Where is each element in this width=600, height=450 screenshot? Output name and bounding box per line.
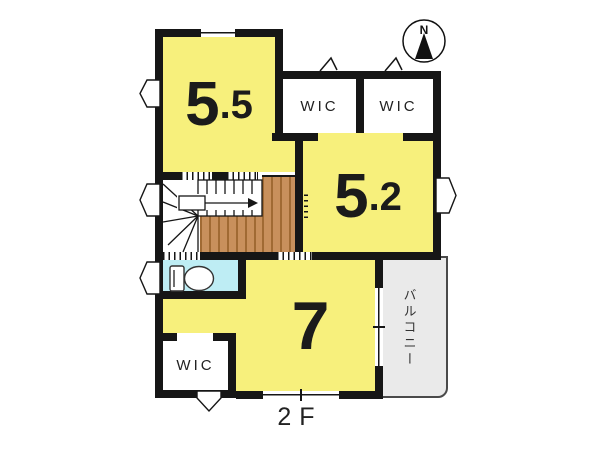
bedroom-b-area-frac: .2 bbox=[369, 177, 402, 217]
window-bedroom-a-left-icon bbox=[140, 80, 160, 107]
awning-window-wic1-icon bbox=[320, 58, 337, 71]
window-bedroom-b-right-icon bbox=[436, 178, 456, 213]
window-stairs-left-icon bbox=[140, 184, 160, 216]
bedroom-a-area-whole: 5 bbox=[185, 74, 219, 136]
awning-window-icons bbox=[320, 58, 402, 71]
wic-bottom-label: WIC bbox=[163, 341, 228, 390]
window-wic-bottom-icon bbox=[197, 391, 221, 411]
floor-label: 2F bbox=[255, 402, 345, 432]
window-toilet-left-icon bbox=[140, 262, 160, 294]
wic-top-right-label: WIC bbox=[364, 79, 433, 133]
balcony-label: バルコニー bbox=[400, 288, 418, 368]
awning-window-wic2-icon bbox=[385, 58, 402, 71]
bedroom-a-area-frac: .5 bbox=[220, 85, 253, 125]
bedroom-b-area-whole: 5 bbox=[334, 166, 368, 228]
staircase bbox=[163, 180, 262, 252]
toilet-icon bbox=[170, 266, 214, 291]
floor-plan: N 5.5 5.2 7 WIC WIC WIC バルコニー 2F bbox=[0, 0, 600, 450]
bedroom-c-label: 7 bbox=[246, 258, 375, 393]
bedroom-c-area-whole: 7 bbox=[292, 292, 330, 360]
wic-top-left-label: WIC bbox=[283, 79, 356, 133]
bedroom-a-label: 5.5 bbox=[163, 37, 275, 172]
compass: N bbox=[403, 20, 445, 62]
bedroom-b-label: 5.2 bbox=[303, 141, 433, 252]
